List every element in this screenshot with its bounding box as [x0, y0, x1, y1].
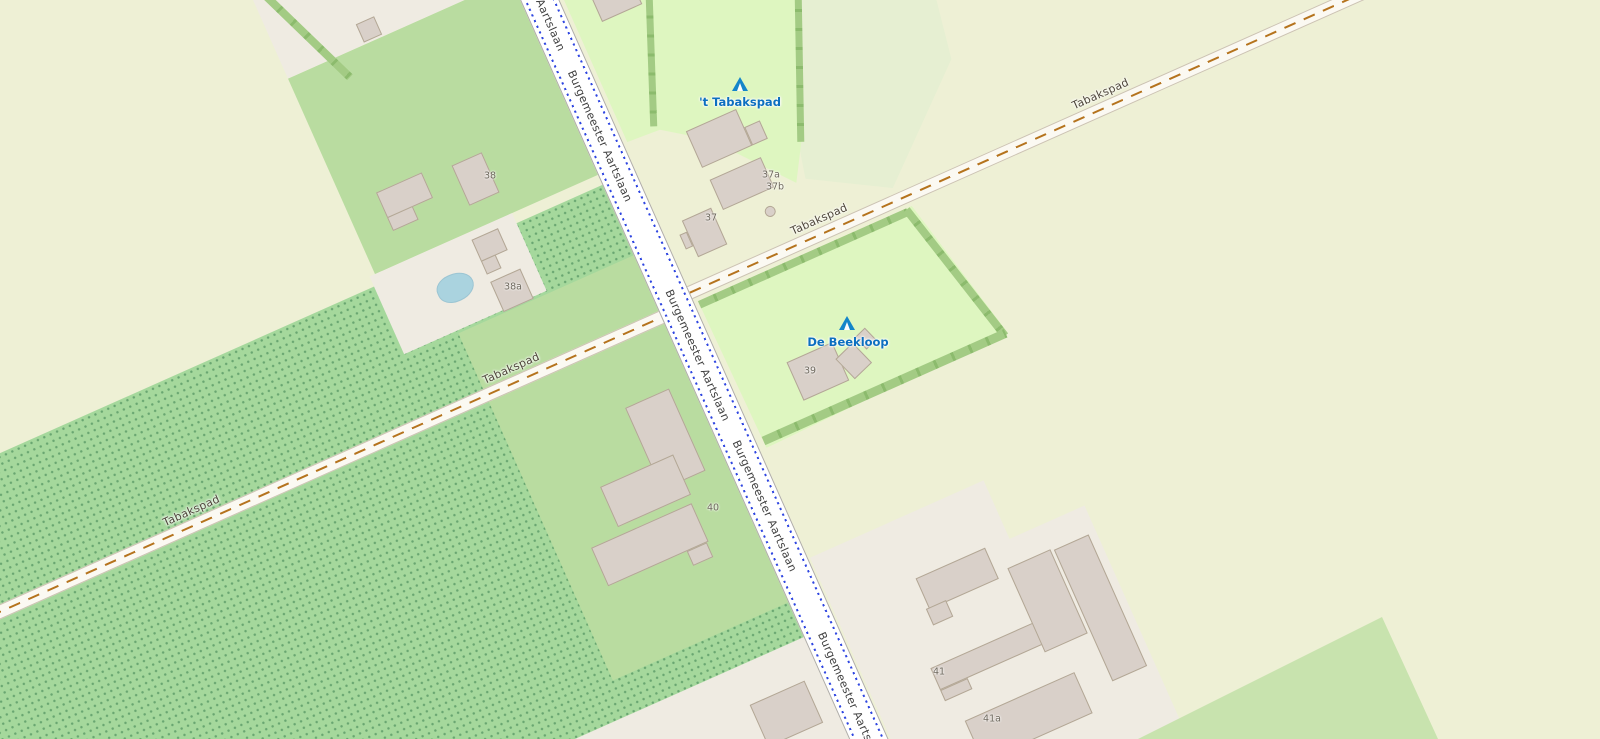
house-number-39: 39: [804, 366, 816, 377]
house-number-38a: 38a: [504, 282, 522, 293]
house-number-38: 38: [484, 171, 496, 182]
house-number-41a: 41a: [983, 714, 1001, 725]
house-number-41: 41: [933, 667, 945, 678]
house-number-37b: 37b: [766, 182, 784, 193]
tent-icon: [839, 316, 855, 330]
house-number-40: 40: [707, 503, 719, 514]
map-canvas[interactable]: Burgemeester Aartslaan Burgemeester Aart…: [0, 0, 1600, 739]
campsite-label-beekloop: De Beekloop: [807, 335, 888, 349]
house-number-37: 37: [705, 213, 717, 224]
house-number-37a: 37a: [762, 170, 780, 181]
building-silo-round: [763, 204, 778, 219]
campsite-label-tabakspad: 't Tabakspad: [699, 95, 781, 109]
tent-icon: [732, 77, 748, 91]
